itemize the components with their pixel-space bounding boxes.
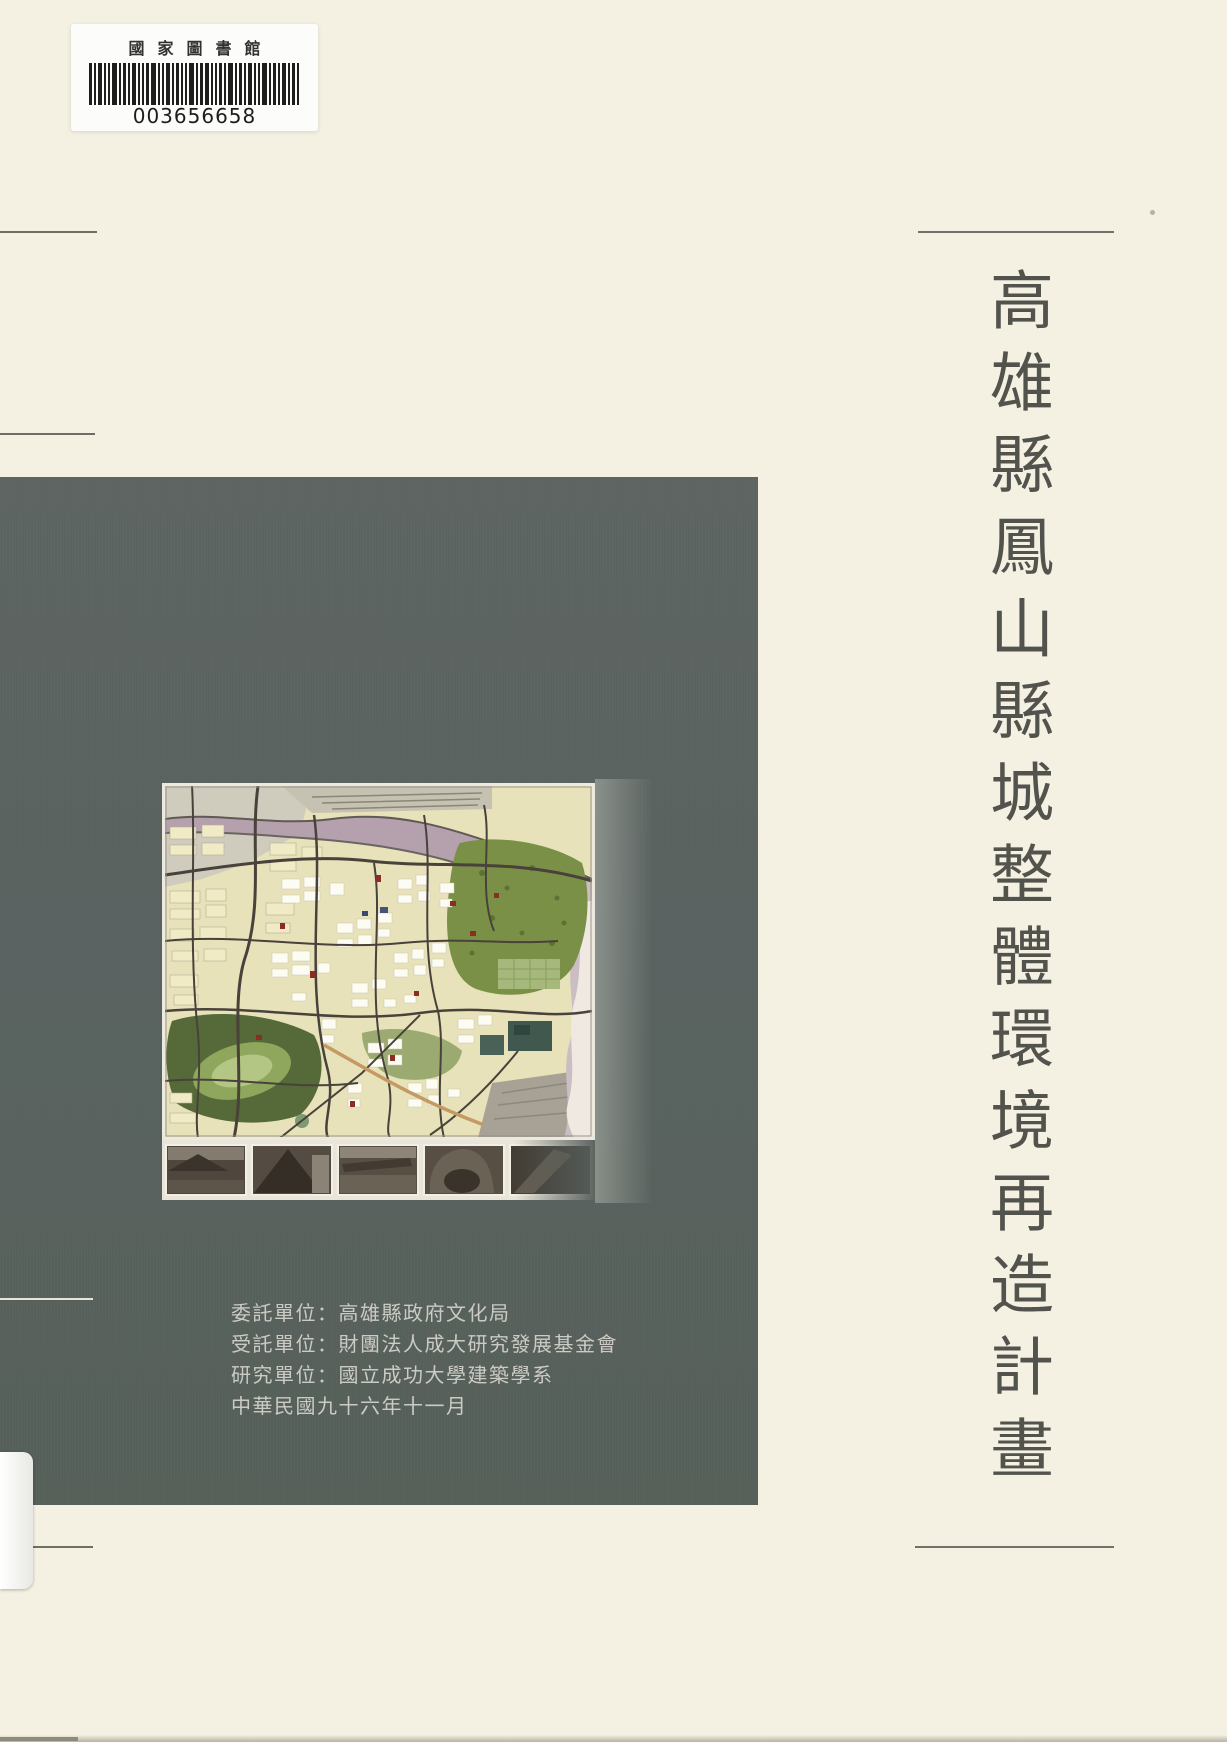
cover-map-image <box>162 783 595 1200</box>
credit-entrusted-unit: 受託單位：財團法人成大研究發展基金會 <box>231 1330 618 1361</box>
paper-speck <box>1150 210 1155 215</box>
credits-block: 委託單位：高雄縣政府文化局 受託單位：財團法人成大研究發展基金會 研究單位：國立… <box>231 1299 618 1423</box>
photo-4 <box>424 1145 504 1195</box>
scan-light-bleed <box>595 779 653 1203</box>
fengshan-plan-map-graphic <box>162 783 595 1200</box>
credit-research-unit: 研究單位：國立成功大學建築學系 <box>231 1361 618 1392</box>
barcode-number: 003656658 <box>71 104 318 128</box>
credit-date: 中華民國九十六年十一月 <box>231 1392 618 1423</box>
library-barcode-label: 國家圖書館 003656658 <box>71 24 318 131</box>
page-title: 高雄縣鳳山縣城整體環境再造計畫 <box>984 267 1048 1507</box>
left-edge-rule-white <box>0 1298 93 1300</box>
spine-sticker <box>0 1452 33 1589</box>
photo-3 <box>338 1145 418 1195</box>
page-bottom-corner-shadow <box>0 1737 78 1741</box>
title-rule-bottom <box>915 1546 1114 1548</box>
left-edge-rule-top <box>0 231 97 233</box>
page-bottom-edge <box>0 1735 1227 1742</box>
library-name: 國家圖書館 <box>71 35 318 59</box>
title-rule-top <box>918 231 1114 233</box>
left-edge-rule-upper <box>0 433 95 435</box>
barcode-icon <box>89 63 301 105</box>
photo-1 <box>166 1145 246 1195</box>
credit-commissioning-unit: 委託單位：高雄縣政府文化局 <box>231 1299 618 1330</box>
photo-2 <box>252 1145 332 1195</box>
